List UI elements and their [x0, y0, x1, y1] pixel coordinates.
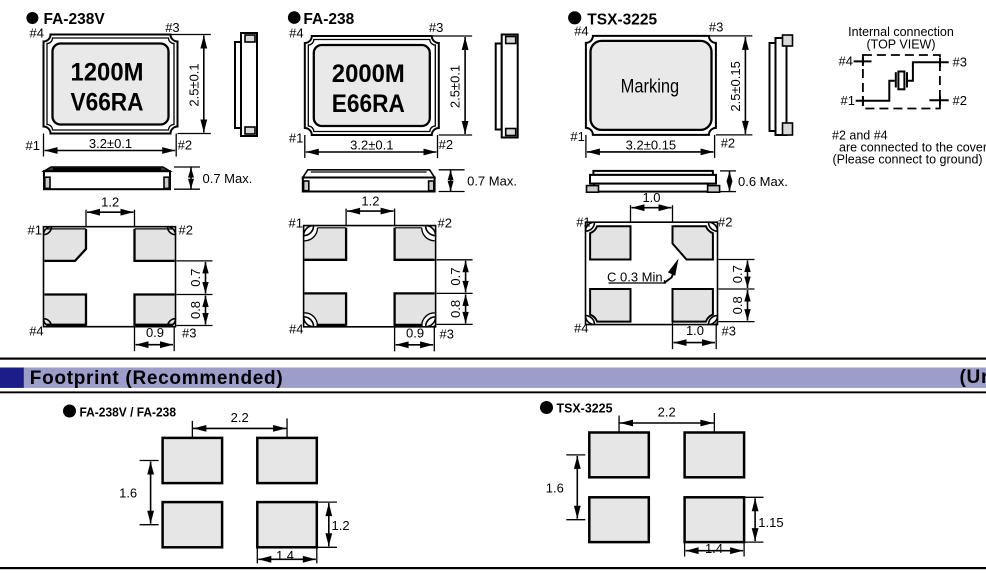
svg-text:#4: #4 — [289, 322, 303, 337]
svg-text:#1: #1 — [570, 129, 584, 144]
svg-text:(Please connect to ground): (Please connect to ground) — [833, 153, 983, 167]
svg-text:3.2±0.1: 3.2±0.1 — [89, 136, 132, 151]
svg-text:FA-238: FA-238 — [303, 11, 354, 28]
svg-text:1.0: 1.0 — [686, 323, 704, 338]
svg-text:FA-238V / FA-238: FA-238V / FA-238 — [80, 405, 177, 420]
svg-text:#2: #2 — [179, 223, 193, 238]
svg-text:V66RA: V66RA — [71, 89, 144, 117]
svg-text:1.4: 1.4 — [705, 541, 723, 556]
svg-text:0.7 Max.: 0.7 Max. — [467, 174, 517, 189]
svg-text:#3: #3 — [429, 20, 443, 35]
svg-text:2.5±0.1: 2.5±0.1 — [186, 63, 201, 106]
svg-text:#3: #3 — [953, 54, 967, 69]
svg-text:Marking: Marking — [621, 75, 680, 97]
svg-text:#1: #1 — [26, 138, 40, 153]
svg-text:#3: #3 — [165, 20, 179, 35]
svg-text:(Unit : mm): (Unit : mm) — [960, 367, 986, 388]
svg-text:2000M: 2000M — [332, 60, 405, 88]
svg-text:#3: #3 — [709, 20, 723, 35]
svg-text:0.8: 0.8 — [448, 300, 463, 318]
svg-text:1.2: 1.2 — [101, 195, 119, 210]
svg-text:#1: #1 — [289, 131, 303, 146]
svg-text:#4: #4 — [29, 324, 43, 339]
svg-text:2.5±0.15: 2.5±0.15 — [728, 61, 743, 112]
svg-text:0.7: 0.7 — [188, 269, 203, 287]
svg-text:1.0: 1.0 — [642, 190, 660, 205]
svg-text:#2: #2 — [953, 93, 967, 108]
svg-text:1.2: 1.2 — [332, 518, 350, 533]
svg-text:3.2±0.15: 3.2±0.15 — [626, 137, 677, 152]
svg-text:2.2: 2.2 — [231, 410, 249, 425]
svg-text:1.15: 1.15 — [758, 515, 783, 530]
svg-text:#3: #3 — [182, 326, 196, 341]
svg-text:E66RA: E66RA — [332, 90, 405, 118]
svg-text:#4: #4 — [574, 23, 588, 38]
svg-text:Footprint (Recommended): Footprint (Recommended) — [30, 368, 284, 389]
svg-text:#2: #2 — [438, 215, 452, 230]
svg-text:#4: #4 — [839, 54, 853, 69]
svg-text:0.7: 0.7 — [730, 265, 745, 283]
svg-text:C 0.3 Min.: C 0.3 Min. — [607, 269, 666, 284]
svg-text:1.6: 1.6 — [119, 486, 137, 501]
svg-text:#2: #2 — [439, 137, 453, 152]
svg-text:#1: #1 — [576, 215, 590, 230]
svg-text:TSX-3225: TSX-3225 — [587, 12, 657, 29]
svg-text:2.2: 2.2 — [658, 405, 676, 420]
svg-text:0.8: 0.8 — [188, 301, 203, 319]
svg-text:0.7: 0.7 — [448, 268, 463, 286]
svg-text:#4: #4 — [289, 25, 303, 40]
svg-text:#2: #2 — [178, 138, 192, 153]
svg-text:#2: #2 — [718, 215, 732, 230]
svg-text:TSX-3225: TSX-3225 — [557, 401, 613, 416]
svg-text:0.8: 0.8 — [730, 296, 745, 314]
svg-text:0.9: 0.9 — [146, 325, 164, 340]
svg-text:(TOP VIEW): (TOP VIEW) — [867, 38, 936, 52]
svg-text:#2: #2 — [721, 136, 735, 151]
svg-text:0.9: 0.9 — [406, 325, 424, 340]
svg-text:#3: #3 — [440, 327, 454, 342]
svg-text:#4: #4 — [574, 321, 588, 336]
svg-text:0.6 Max.: 0.6 Max. — [738, 174, 788, 189]
svg-text:#3: #3 — [722, 324, 736, 339]
svg-text:0.7 Max.: 0.7 Max. — [203, 171, 253, 186]
svg-text:2.5±0.1: 2.5±0.1 — [448, 65, 463, 108]
svg-text:#1: #1 — [28, 223, 42, 238]
svg-text:1.6: 1.6 — [546, 480, 564, 495]
svg-text:1200M: 1200M — [71, 59, 144, 87]
svg-text:FA-238V: FA-238V — [44, 11, 106, 28]
svg-text:3.2±0.1: 3.2±0.1 — [350, 138, 393, 153]
svg-text:#1: #1 — [289, 215, 303, 230]
svg-text:#1: #1 — [841, 93, 855, 108]
svg-text:1.4: 1.4 — [276, 548, 294, 563]
svg-text:#4: #4 — [30, 26, 44, 41]
svg-text:1.2: 1.2 — [361, 194, 379, 209]
